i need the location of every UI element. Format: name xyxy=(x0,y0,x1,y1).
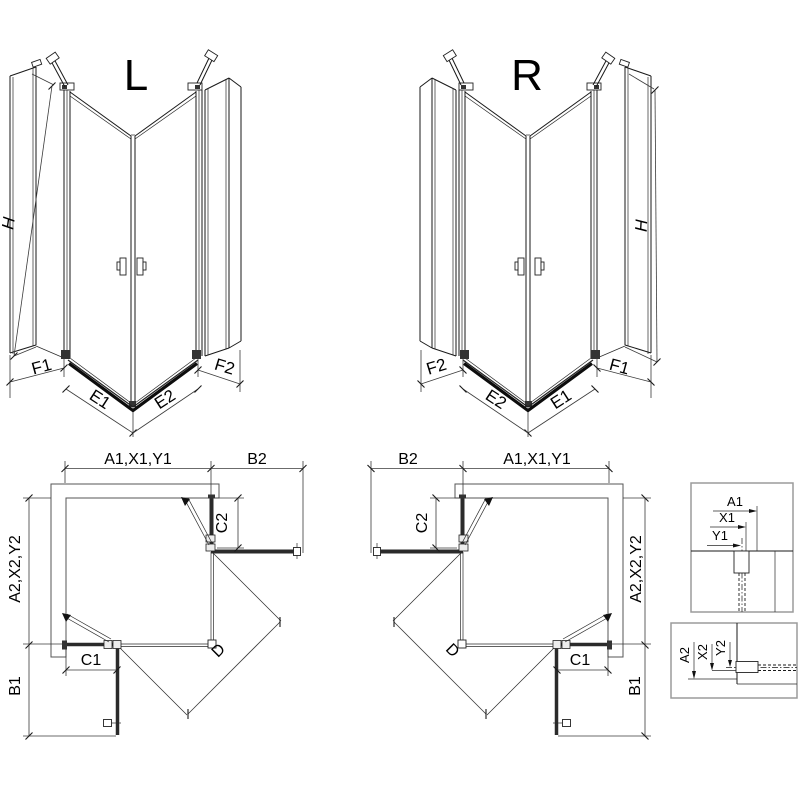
height-dim-label-left: H xyxy=(0,215,19,231)
plan-left-b1-label: B1 xyxy=(7,676,24,696)
diagram-canvas: L H F1 E1 E2 F2 R H F2 E2 E1 F1 A1,X1,Y1… xyxy=(0,0,800,800)
plan-left-c1-label: C1 xyxy=(81,652,102,669)
plan-right-side-label: A2,X2,Y2 xyxy=(628,535,645,603)
detail-box-wall-profile-top: A1 X1 Y1 xyxy=(691,483,793,612)
dim-label-f1-left-view: F1 xyxy=(30,355,54,378)
detail-x2-label: X2 xyxy=(695,644,710,660)
plan-left-b2-label: B2 xyxy=(247,451,267,468)
plan-right-c1-label: C1 xyxy=(570,652,591,669)
dim-label-e2-left-view: E2 xyxy=(151,386,179,413)
plan-left-c2-label: C2 xyxy=(214,513,231,534)
plan-left-side-label: A2,X2,Y2 xyxy=(7,535,24,603)
plan-right-b1-label: B1 xyxy=(627,676,644,696)
plan-left-width-label: A1,X1,Y1 xyxy=(104,451,172,468)
dim-label-f2-left-view: F2 xyxy=(212,355,237,379)
dim-label-f1-right-view: F1 xyxy=(607,355,631,378)
view-title-left: L xyxy=(124,51,148,100)
detail-box-wall-profile-bottom: A2 X2 Y2 xyxy=(671,623,797,698)
right-plan-view: A1,X1,Y1 B2 C2 A2,X2,Y2 C1 B1 D xyxy=(368,451,652,740)
dim-label-e2-right-view: E2 xyxy=(482,386,510,413)
detail-y2-label: Y2 xyxy=(713,640,728,656)
view-title-right: R xyxy=(511,51,543,100)
plan-right-b2-label: B2 xyxy=(398,451,418,468)
height-dim-label-right: H xyxy=(632,218,652,232)
detail-a2-label: A2 xyxy=(677,647,692,663)
left-plan-view: A1,X1,Y1 B2 C2 A2,X2,Y2 C1 B1 D xyxy=(7,451,307,740)
shower-enclosure-dimension-diagram: L H F1 E1 E2 F2 R H F2 E2 E1 F1 A1,X1,Y1… xyxy=(0,0,800,800)
left-3d-view: L H F1 E1 E2 F2 xyxy=(0,50,244,437)
detail-y1-label: Y1 xyxy=(712,528,728,543)
plan-right-width-label: A1,X1,Y1 xyxy=(503,451,571,468)
right-3d-view: R H F2 E2 E1 F1 xyxy=(418,50,661,437)
detail-a1-label: A1 xyxy=(727,494,743,509)
detail-x1-label: X1 xyxy=(719,510,735,525)
plan-right-c2-label: C2 xyxy=(414,513,431,534)
dim-label-f2-right-view: F2 xyxy=(424,355,449,379)
